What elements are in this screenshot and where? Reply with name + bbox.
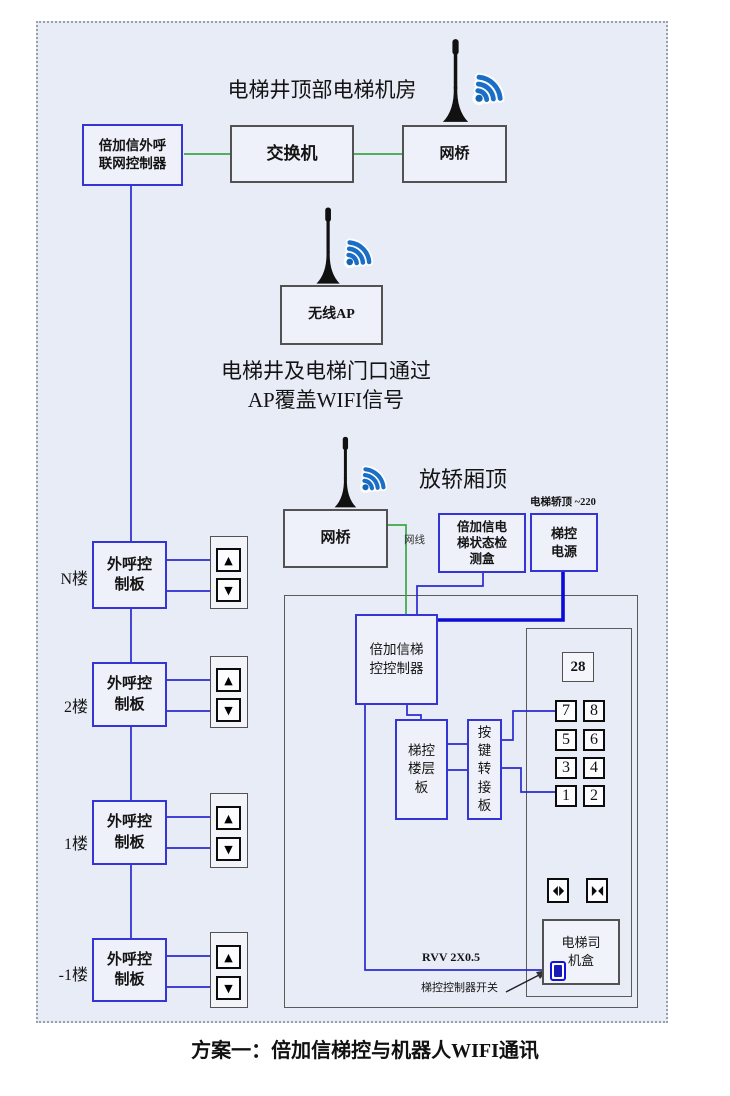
door-open-button bbox=[547, 878, 569, 903]
car-button-4: 4 bbox=[583, 757, 605, 779]
outcall-board-N: 外呼控 制板 bbox=[92, 541, 167, 609]
ethernet-switch-box: 交换机 bbox=[230, 125, 354, 183]
floor-label-1: 1楼 bbox=[40, 830, 88, 854]
cab-top-title: 放轿厢顶 bbox=[419, 462, 507, 494]
wifi-antenna-icon bbox=[438, 38, 512, 124]
bridge-box-cab: 网桥 bbox=[283, 509, 388, 568]
car-button-6: 6 bbox=[583, 729, 605, 751]
door-close-icon bbox=[590, 883, 605, 899]
up-button: ▲ bbox=[216, 668, 241, 692]
up-button: ▲ bbox=[216, 806, 241, 830]
controller-switch bbox=[550, 961, 566, 981]
controller-switch-body bbox=[554, 965, 562, 977]
car-button-2: 2 bbox=[583, 785, 605, 807]
key-adapter-box: 按 键 转 接 板 bbox=[467, 719, 502, 820]
down-button: ▼ bbox=[216, 698, 241, 722]
elevator-controller-box: 倍加信梯 控控制器 bbox=[355, 614, 438, 705]
rvv-cable-label: RVV 2X0.5 bbox=[422, 950, 480, 965]
floor-label-minus1: -1楼 bbox=[40, 961, 88, 985]
outcall-network-controller-box: 倍加信外呼 联网控制器 bbox=[82, 124, 183, 186]
down-button: ▼ bbox=[216, 578, 241, 602]
page: 电梯井顶部电梯机房 倍加信外呼 联网控制器 交换机 网桥 无线AP 电梯井及电梯… bbox=[0, 0, 730, 1096]
car-button-7: 7 bbox=[555, 700, 577, 722]
ap-note-line1: 电梯井及电梯门口通过 bbox=[196, 355, 456, 385]
elevator-status-box: 倍加信电 梯状态检 测盒 bbox=[438, 513, 526, 573]
up-button: ▲ bbox=[216, 945, 241, 969]
outcall-board-minus1: 外呼控 制板 bbox=[92, 938, 167, 1002]
outcall-board-2: 外呼控 制板 bbox=[92, 662, 167, 727]
wifi-antenna-icon bbox=[312, 206, 380, 286]
hall-button-panel-minus1: ▲ ▼ bbox=[210, 932, 248, 1008]
floor-indicator-display: 28 bbox=[562, 652, 594, 682]
outcall-board-1: 外呼控 制板 bbox=[92, 800, 167, 865]
car-button-3: 3 bbox=[555, 757, 577, 779]
floor-label-2: 2楼 bbox=[40, 693, 88, 717]
hall-button-panel-2: ▲ ▼ bbox=[210, 656, 248, 728]
door-open-icon bbox=[551, 883, 566, 899]
machine-room-title: 电梯井顶部电梯机房 bbox=[215, 74, 429, 104]
up-button: ▲ bbox=[216, 548, 241, 572]
hall-button-panel-1: ▲ ▼ bbox=[210, 793, 248, 868]
floor-label-N: N楼 bbox=[40, 565, 88, 589]
car-button-1: 1 bbox=[555, 785, 577, 807]
bridge-box-top: 网桥 bbox=[402, 125, 507, 183]
down-button: ▼ bbox=[216, 837, 241, 861]
down-button: ▼ bbox=[216, 976, 241, 1000]
wireless-ap-box: 无线AP bbox=[280, 285, 383, 345]
door-close-button bbox=[586, 878, 608, 903]
hall-button-panel-N: ▲ ▼ bbox=[210, 536, 248, 609]
diagram-caption: 方案一：倍加信梯控与机器人WIFI通讯 bbox=[0, 1034, 730, 1063]
elevator-power-box: 梯控 电源 bbox=[530, 513, 598, 572]
ap-note-line2: AP覆盖WIFI信号 bbox=[196, 384, 456, 414]
cab-power-note: 电梯轿顶 ~220 bbox=[530, 494, 596, 509]
car-button-8: 8 bbox=[583, 700, 605, 722]
floor-board-box: 梯控 楼层 板 bbox=[395, 719, 448, 820]
wifi-antenna-icon bbox=[330, 436, 394, 509]
controller-switch-label: 梯控控制器开关 bbox=[421, 979, 498, 995]
network-cable-label: 网线 bbox=[404, 532, 425, 547]
car-button-5: 5 bbox=[555, 729, 577, 751]
